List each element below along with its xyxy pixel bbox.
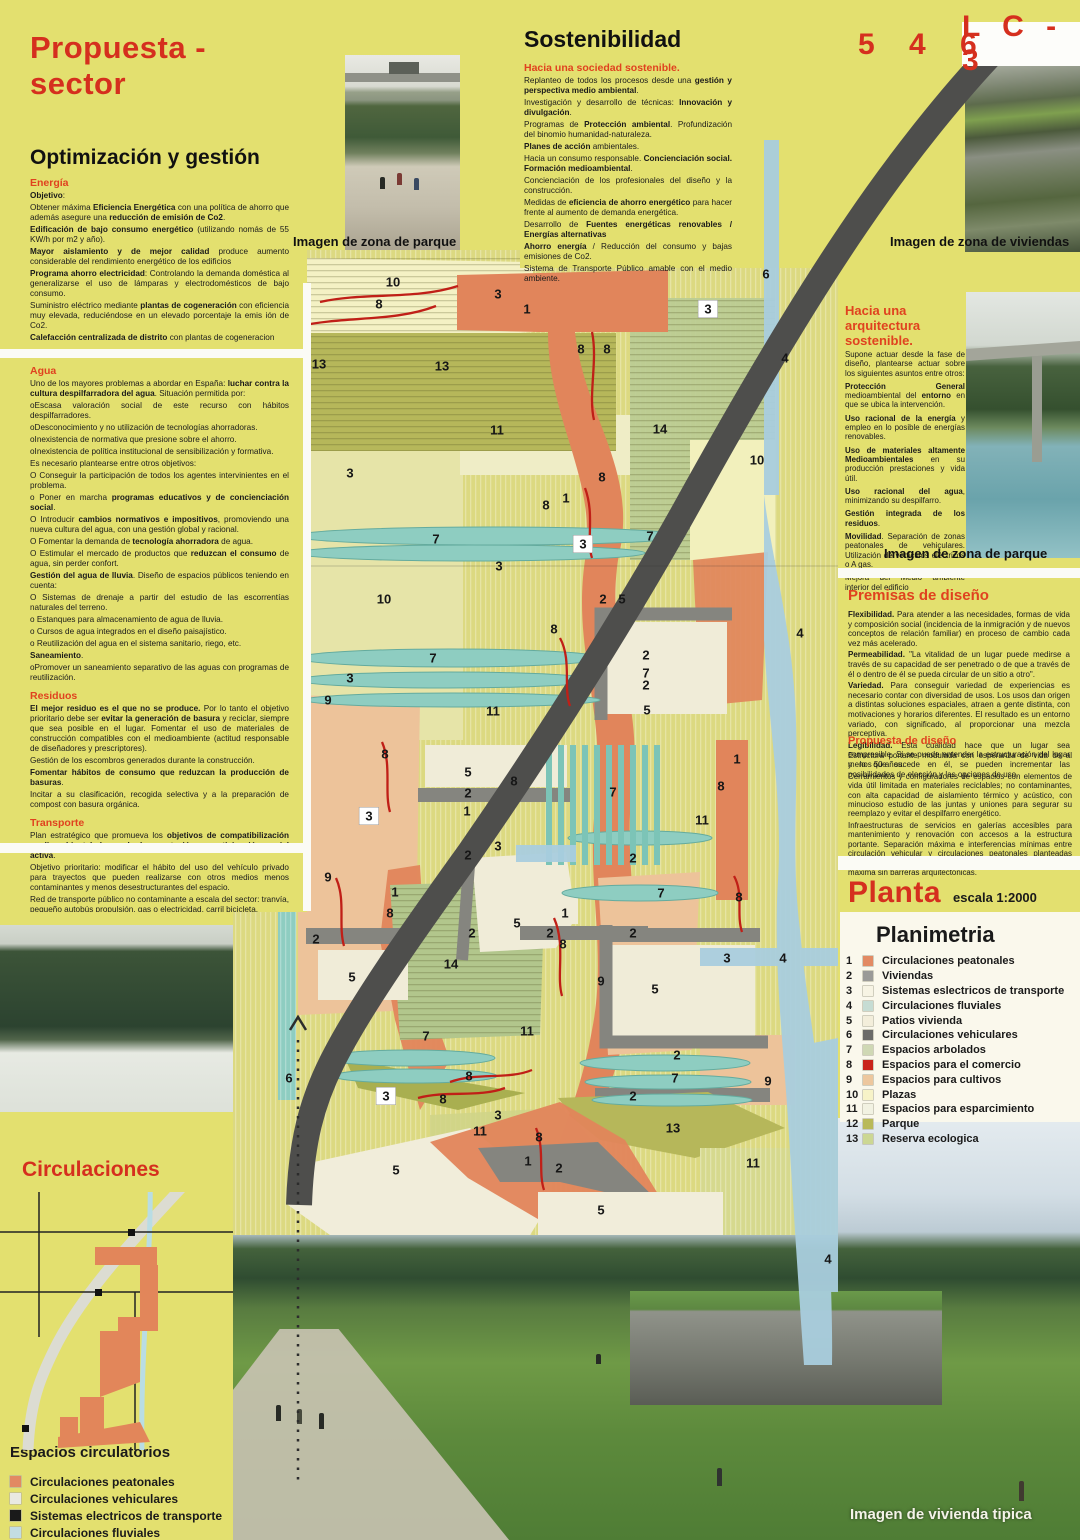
map-label-8: 8 [598,470,605,485]
divider [0,349,307,358]
legend-swatch [863,1119,873,1129]
legend-swatch [863,1001,873,1011]
photo-park-zone-right [966,292,1080,558]
legend-row: 7 Espacios arbolados [846,1043,1080,1058]
paragraph: Replanteo de todos los procesos desde un… [524,76,732,96]
map-label-2: 2 [673,1048,680,1063]
premises-heading: Premisas de diseño [848,587,1070,604]
paragraph: Permeabilidad. "La vitalidad de un lugar… [848,650,1070,679]
divider [303,283,311,911]
sustainability-paragraphs: Replanteo de todos los procesos desde un… [524,76,732,284]
agua-paragraphs: Uno de los mayores problemas a abordar e… [30,379,289,683]
map-label-8: 8 [550,622,557,637]
legend-number: 3 [846,985,863,997]
monorail-pylon [1032,356,1042,462]
energia-paragraphs: Objetivo:Obtener máxima Eficiencia Energ… [30,191,289,343]
paragraph: Concienciación de los profesionales del … [524,176,732,196]
map-label-5: 5 [348,970,355,985]
paragraph: O Fomentar la demanda de tecnología ahor… [30,537,289,547]
heading-agua: Agua [30,365,289,377]
legend-swatch [863,971,873,981]
legend-label: Circulaciones peatonales [30,1475,175,1489]
map-label-2: 2 [629,1089,636,1104]
divider [838,568,1080,578]
legend-label: Espacios para cultivos [882,1074,1001,1086]
paragraph: Ahorro energía / Reducción del consumo y… [524,242,732,262]
legend-number: 12 [846,1118,863,1130]
pedestrian [717,1468,722,1486]
legend-number: 6 [846,1029,863,1041]
legend-label: Circulaciones fluviales [30,1526,160,1540]
heading-residuos: Residuos [30,690,289,702]
legend-number: 11 [846,1103,863,1115]
pedestrian [1019,1481,1024,1501]
legend-swatch [863,1060,873,1070]
paragraph: O Conseguir la participación de todos lo… [30,471,289,491]
caption-park-top: Imagen de zona de parque [293,234,456,249]
paragraph: El mejor residuo es el que no se produce… [30,704,289,754]
legend-swatch [863,1030,873,1040]
sheet-number: 5 4 6 [858,28,990,62]
circulaciones-minimap [0,1192,233,1450]
paragraph: Protección General medioambiental del en… [845,382,965,410]
page-title: Propuesta - sector [30,30,289,102]
map-label-9: 9 [764,1074,771,1089]
map-label-8: 8 [717,779,724,794]
map-label-7: 7 [642,666,649,681]
legend-number: 1 [846,955,863,967]
map-label-1: 1 [391,885,398,900]
legend-label: Sistemas electricos de transporte [30,1509,222,1523]
legend-swatch [863,986,873,996]
paragraph: Gestión integrada de los residuos. [845,509,965,528]
map-label-4: 4 [779,951,786,966]
divider [0,843,307,853]
pedestrian [397,173,402,185]
monorail-train [389,62,419,74]
legend-row: 2 Viviendas [846,969,1080,984]
map-label-7: 7 [422,1029,429,1044]
paragraph: Planes de acción ambientales. [524,142,732,152]
legend-number: 5 [846,1015,863,1027]
paragraph: Supone actuar desde la fase de diseño, p… [845,350,965,378]
caption-park-right: Imagen de zona de parque [884,546,1047,561]
legend-row: Sistemas electricos de transporte [10,1507,233,1524]
map-label-2: 2 [464,848,471,863]
paragraph: Suministro eléctrico mediante plantas de… [30,301,289,331]
legend-label: Reserva ecologica [882,1133,979,1145]
legend-label: Plazas [882,1089,916,1101]
paragraph: oPromover un saneamiento separativo de l… [30,663,289,683]
pedestrian [319,1413,324,1429]
paragraph: Incitar a su clasificación, recogida sel… [30,790,289,810]
legend-row: 6 Circulaciones vehiculares [846,1028,1080,1043]
design-proposal-heading: Propuesta de diseño [848,735,1072,747]
legend-label: Espacios para esparcimiento [882,1103,1034,1115]
circulaciones-panel: Circulaciones Espacios circulatorios [0,1112,233,1540]
legend-label: Patios vivienda [882,1015,962,1027]
legend-label: Circulaciones vehiculares [30,1492,178,1506]
map-label-11: 11 [520,1024,534,1039]
map-label-10: 10 [377,592,391,607]
pedestrian [297,1409,302,1424]
paragraph: Programas de Protección ambiental. Profu… [524,120,732,140]
legend-label: Sistemas eslectricos de transporte [882,985,1064,997]
paragraph: Objetivo: [30,191,289,201]
paragraph: Cerramientos y configuradores de espacio… [848,772,1072,819]
paragraph: O Estimular el mercado de productos que … [30,549,289,569]
photo-forest-strip [0,925,233,1113]
map-label-3: 3 [346,466,353,481]
map-label-8: 8 [735,890,742,905]
pedestrian [276,1405,281,1421]
paragraph: oInexistencia de política institucional … [30,447,289,457]
paragraph: Saneamiento. [30,651,289,661]
map-label-2: 2 [642,678,649,693]
map-label-2: 2 [629,851,636,866]
paragraph: oEscasa valoración social de este recurs… [30,401,289,421]
map-label-7: 7 [646,529,653,544]
paragraph: o Cursos de agua integrados en el diseño… [30,627,289,637]
sustainability-panel: Sostenibilidad Hacia una sociedad sosten… [524,26,732,286]
legend-label: Espacios para el comercio [882,1059,1021,1071]
planimetria-title: Planimetria [876,922,1080,948]
paragraph: Uso racional de la energía y empleo en l… [845,414,965,442]
left-text-panel: Propuesta - sector Optimización y gestió… [0,0,307,912]
planta-title: Planta [848,876,941,910]
map-label-2: 2 [464,786,471,801]
legend-row: 4 Circulaciones fluviales [846,998,1080,1013]
map-label-8: 8 [542,498,549,513]
paragraph: Gestión de los escombros generados duran… [30,756,289,766]
legend-number: 4 [846,1000,863,1012]
legend-swatch [10,1510,21,1521]
map-label-8: 8 [375,297,382,312]
legend-swatch [863,1090,873,1100]
circulaciones-legend: Circulaciones peatonales Circulaciones v… [10,1473,233,1540]
legend-swatch [10,1527,21,1538]
map-label-10: 10 [386,275,400,290]
paragraph: oInexistencia de normativa que presione … [30,435,289,445]
paragraph: Medidas de eficiencia de ahorro energéti… [524,198,732,218]
map-label-3: 3 [495,559,502,574]
map-label-1: 1 [562,491,569,506]
legend-row: 1 Circulaciones peatonales [846,954,1080,969]
legend-number: 13 [846,1133,863,1145]
map-label-4: 4 [781,351,788,366]
map-label-8: 8 [439,1092,446,1107]
planimetria-items: 1 Circulaciones peatonales 2 Viviendas 3… [840,954,1080,1146]
legend-swatch [863,1104,873,1114]
legend-swatch [863,1075,873,1085]
paragraph: Uso de materiales altamente Medioambient… [845,446,965,483]
legend-row: Circulaciones fluviales [10,1524,233,1540]
legend-row: 10 Plazas [846,1087,1080,1102]
paragraph: Red de transporte público no contaminant… [30,895,289,912]
legend-label: Circulaciones vehiculares [882,1029,1018,1041]
caption-viviendas: Imagen de zona de viviendas [890,234,1069,249]
sustainability-subheading: Hacia una sociedad sostenible. [524,62,732,74]
heading-energia: Energía [30,177,289,189]
map-label-2: 2 [629,926,636,941]
legend-label: Parque [882,1118,919,1130]
map-label-13: 13 [312,357,326,372]
map-label-6: 6 [285,1071,292,1086]
monorail-beam [345,73,460,83]
map-label-3: 3 [573,536,592,553]
paragraph: o Poner en marcha programas educativos y… [30,493,289,513]
legend-label: Circulaciones fluviales [882,1000,1001,1012]
legend-label: Circulaciones peatonales [882,955,1015,967]
map-label-7: 7 [429,651,436,666]
walking-path [215,1329,509,1540]
map-label-1: 1 [463,804,470,819]
map-label-1: 1 [561,906,568,921]
green-roof-building [630,1291,941,1405]
map-label-6: 6 [762,267,769,282]
legend-number: 2 [846,970,863,982]
map-label-10: 10 [750,453,764,468]
map-label-13: 13 [435,359,449,374]
map-label-9: 9 [597,974,604,989]
map-label-2: 2 [468,926,475,941]
legend-row: 11 Espacios para esparcimiento [846,1102,1080,1117]
map-label-2: 2 [642,648,649,663]
map-label-5: 5 [513,916,520,931]
map-label-8: 8 [381,747,388,762]
pedestrian [380,177,385,189]
map-label-9: 9 [324,693,331,708]
pedestrian [596,1354,601,1364]
map-label-7: 7 [432,532,439,547]
paragraph: Desarrollo de Fuentes energéticas renova… [524,220,732,240]
legend-swatch [863,956,873,966]
map-label-2: 2 [312,932,319,947]
map-label-3: 3 [494,839,501,854]
legend-swatch [863,1134,873,1144]
paragraph: Es necesario plantearse entre otros obje… [30,459,289,469]
residuos-paragraphs: El mejor residuo es el que no se produce… [30,704,289,810]
map-label-4: 4 [796,626,803,641]
map-label-3: 3 [359,808,378,825]
planta-scale: escala 1:2000 [953,890,1037,905]
map-label-7: 7 [657,886,664,901]
map-label-5: 5 [618,592,625,607]
map-label-7: 7 [609,785,616,800]
map-label-11: 11 [695,813,709,828]
paragraph: Edificación de bajo consumo energético (… [30,225,289,245]
paragraph: Uso racional del agua, minimizando su de… [845,487,965,506]
photo-housing-zone [965,66,1080,252]
legend-row: 12 Parque [846,1117,1080,1132]
paragraph: Mayor aislamiento y de mejor calidad pro… [30,247,289,267]
map-label-14: 14 [444,957,458,972]
map-label-3: 3 [698,301,717,318]
map-label-3: 3 [494,287,501,302]
legend-row: 9 Espacios para cultivos [846,1072,1080,1087]
presentation-board: 1083188361313471114103818777331025847237… [0,0,1080,1540]
legend-number: 9 [846,1074,863,1086]
legend-swatch [10,1493,21,1504]
map-label-5: 5 [651,982,658,997]
legend-row: Circulaciones vehiculares [10,1490,233,1507]
paragraph: Investigación y desarrollo de técnicas: … [524,98,732,118]
legend-swatch [863,1016,873,1026]
sustainability-title: Sostenibilidad [524,26,732,53]
paragraph: oDesconocimiento y no utilización de tec… [30,423,289,433]
paragraph: Hacia un consumo responsable. Conciencia… [524,154,732,174]
pedestrian [414,178,419,190]
legend-label: Viviendas [882,970,933,982]
legend-row: 3 Sistemas eslectricos de transporte [846,984,1080,999]
legend-label: Espacios arbolados [882,1044,986,1056]
legend-row: 8 Espacios para el comercio [846,1058,1080,1073]
map-label-1: 1 [733,752,740,767]
map-label-3: 3 [346,671,353,686]
paragraph: Calefacción centralizada de distrito con… [30,333,289,343]
legend-row: 5 Patios vivienda [846,1013,1080,1028]
map-label-8: 8 [577,342,584,357]
heading-transporte: Transporte [30,817,289,829]
photo-park-zone-top [345,55,460,251]
planta-header: Planta escala 1:2000 [848,876,1037,910]
map-label-9: 9 [324,870,331,885]
map-label-11: 11 [490,423,504,438]
map-label-8: 8 [510,774,517,789]
paragraph: Uno de los mayores problemas a abordar e… [30,379,289,399]
paragraph: Programa ahorro electricidad: Controland… [30,269,289,299]
map-label-8: 8 [465,1069,472,1084]
map-label-5: 5 [643,703,650,718]
paragraph: Obtener máxima Eficiencia Energética con… [30,203,289,223]
map-label-3: 3 [376,1088,395,1105]
monorail-beam [966,341,1080,362]
map-label-11: 11 [486,704,500,719]
paragraph: Sistema de Transporte Público amable con… [524,264,732,284]
divider [838,856,1080,870]
map-label-5: 5 [464,765,471,780]
map-label-8: 8 [559,937,566,952]
paragraph: Objetivo prioritario: modificar el hábit… [30,863,289,893]
section-title-optimizacion: Optimización y gestión [30,146,289,170]
planimetria-legend-panel: Planimetria 1 Circulaciones peatonales 2… [840,912,1080,1122]
paragraph: o Estanques para almacenamiento de agua … [30,615,289,625]
map-label-2: 2 [599,592,606,607]
paragraph: Gestión del agua de lluvia. Diseño de es… [30,571,289,591]
paragraph: o Reutilización del agua en el sistema s… [30,639,289,649]
paragraph: Flexibilidad. Para atender a las necesid… [848,610,1070,648]
map-label-8: 8 [603,342,610,357]
legend-number: 8 [846,1059,863,1071]
paragraph: O Introducir cambios normativos e imposi… [30,515,289,535]
legend-number: 10 [846,1089,863,1101]
map-label-14: 14 [653,422,667,437]
legend-row: Circulaciones peatonales [10,1473,233,1490]
map-label-1: 1 [523,302,530,317]
map-label-7: 7 [671,1071,678,1086]
paragraph: Estructura portante modulada con esperan… [848,751,1072,770]
paragraph: Fomentar hábitos de consumo que reduzcan… [30,768,289,788]
caption-vivienda-tipica: Imagen de vivienda tipica [850,1506,1032,1523]
map-label-8: 8 [386,906,393,921]
photo-typical-housing [215,1118,1080,1540]
legend-number: 7 [846,1044,863,1056]
legend-row: 13 Reserva ecologica [846,1132,1080,1147]
paragraph: O Sistemas de drenaje a partir del estud… [30,593,289,613]
circulaciones-title: Circulaciones [22,1158,233,1182]
map-label-3: 3 [723,951,730,966]
architecture-heading: Hacia una arquitectura sostenible. [845,303,965,348]
map-label-2: 2 [546,926,553,941]
legend-swatch [10,1476,21,1487]
legend-swatch [863,1045,873,1055]
